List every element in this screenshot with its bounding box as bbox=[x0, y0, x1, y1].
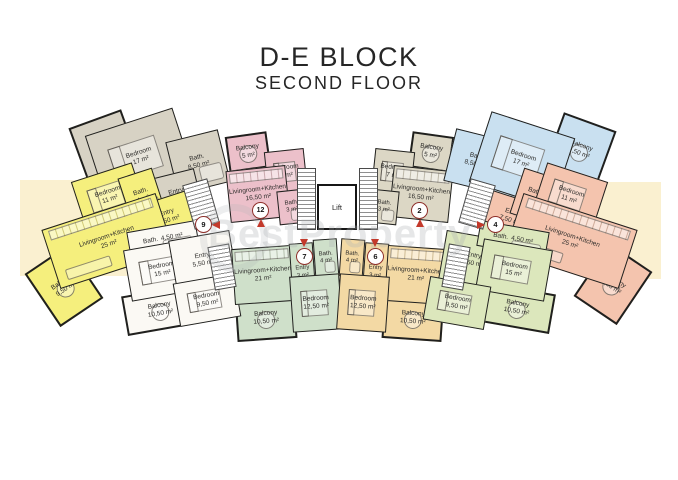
apartment-number-badge: 7 bbox=[296, 248, 313, 265]
entry-arrow-icon bbox=[212, 221, 220, 229]
stairs-core-left bbox=[297, 168, 316, 230]
apartment-number-badge: 2 bbox=[411, 202, 428, 219]
entry-arrow-icon bbox=[416, 219, 424, 227]
green-bottom-left-living-kitchen: Livingroom+Kitchen21 m² bbox=[231, 245, 295, 305]
room-area-label: 3 m² bbox=[376, 206, 391, 215]
room-area-label: 4 m² bbox=[344, 258, 359, 266]
green-bottom-left-bedroom: Bedroom12,50 m² bbox=[289, 273, 343, 332]
tan-bottom-center-bath: Bath.4 m² bbox=[339, 238, 366, 278]
lift-label: Lift bbox=[332, 203, 342, 212]
apartment-number-badge: 4 bbox=[487, 216, 504, 233]
entry-arrow-icon bbox=[371, 239, 379, 247]
room-area-label: 12,50 m² bbox=[303, 302, 330, 312]
entry-arrow-icon bbox=[477, 221, 485, 229]
entry-arrow-icon bbox=[300, 239, 308, 247]
room-area-label: 12,50 m² bbox=[349, 302, 376, 312]
apartment-number-badge: 12 bbox=[252, 202, 269, 219]
plan-title: D-E BLOCK bbox=[0, 42, 678, 73]
plan-subtitle: SECOND FLOOR bbox=[0, 73, 678, 94]
apartment-number-badge: 6 bbox=[367, 248, 384, 265]
green-bottom-left-bath: Bath.4 m² bbox=[313, 238, 340, 278]
room-area-label: 10,50 m² bbox=[253, 317, 279, 327]
apartment-number-badge: 9 bbox=[195, 216, 212, 233]
floor-plan-canvas: D-E BLOCK SECOND FLOOR BestProperty Balc… bbox=[0, 0, 678, 480]
lift-shaft: Lift bbox=[317, 184, 357, 230]
tan-bottom-center-bedroom: Bedroom12,50 m² bbox=[336, 273, 390, 332]
stairs-core-right bbox=[359, 168, 378, 230]
entry-arrow-icon bbox=[257, 219, 265, 227]
room-area-label: 4 m² bbox=[319, 258, 334, 266]
